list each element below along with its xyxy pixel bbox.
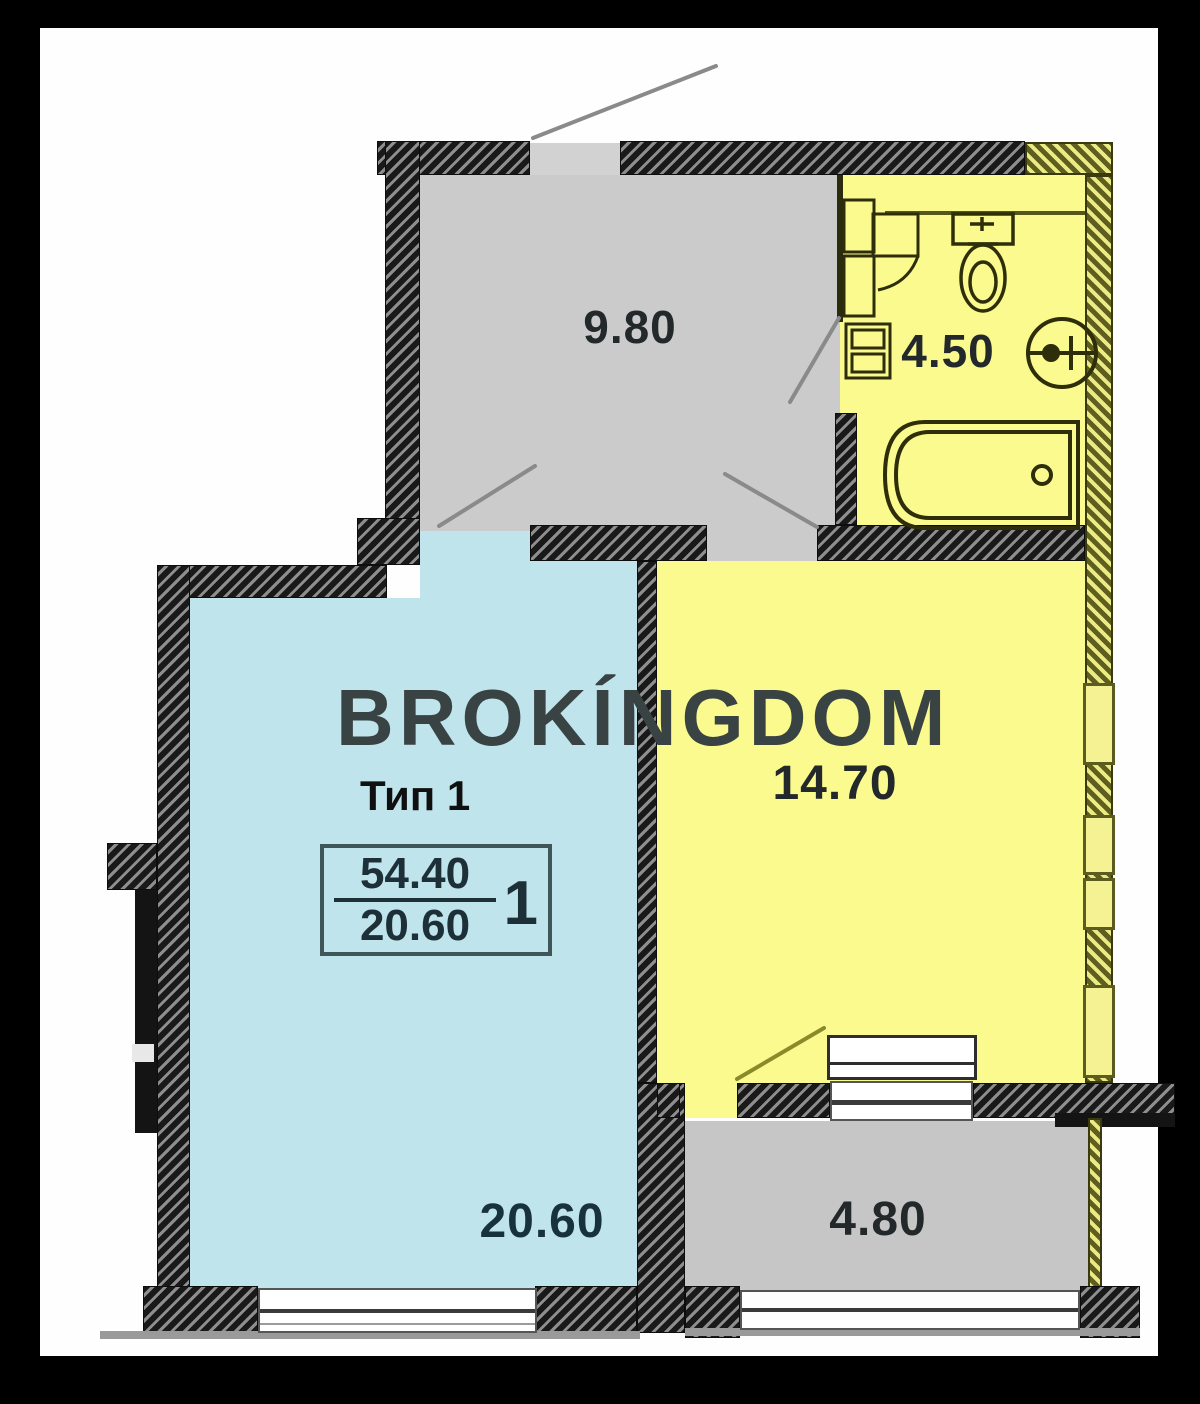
wall-glass-block xyxy=(1083,985,1115,1078)
wall-main-bottom-left xyxy=(143,1286,258,1333)
wall-balcony-divider xyxy=(637,1083,685,1333)
room-label-hall: 9.80 xyxy=(545,300,715,354)
window-sill-line xyxy=(260,1323,535,1325)
stamp-rooms-count: 1 xyxy=(504,868,538,939)
radiator-icon xyxy=(827,1035,977,1080)
wall-top-right-segment xyxy=(620,141,1025,175)
door-swing-entrance xyxy=(533,66,716,138)
wall-main-room-top xyxy=(157,565,387,598)
stamp-total-area: 54.40 xyxy=(332,850,498,898)
wall-bathroom-bottom xyxy=(817,525,1085,561)
bathroom-shelf-line xyxy=(885,211,1085,215)
room-hall-doorway xyxy=(707,525,817,561)
apartment-stamp: 54.40 20.60 1 xyxy=(320,844,552,956)
window-frame-line xyxy=(260,1309,535,1313)
apartment-type-label: Тип 1 xyxy=(360,772,520,820)
wall-main-bottom-right xyxy=(535,1286,637,1333)
wall-main-room-left xyxy=(157,565,190,1333)
wall-bathroom-partition xyxy=(837,175,843,322)
wall-living-bottom-left xyxy=(657,1083,680,1118)
plan-page: 9.80 4.50 14.70 20.60 4.80 BROKÍNGDOM Ти… xyxy=(40,28,1158,1356)
wall-balcony-right xyxy=(1088,1118,1102,1293)
stamp-living-area: 20.60 xyxy=(332,902,498,950)
wall-bathroom-door-stub xyxy=(835,413,857,525)
floor-plan-canvas: 9.80 4.50 14.70 20.60 4.80 BROKÍNGDOM Ти… xyxy=(0,0,1200,1404)
wall-glass-block xyxy=(1083,815,1115,875)
wall-left-pilaster xyxy=(107,843,157,890)
window-balcony xyxy=(740,1290,1080,1330)
wall-living-bottom-mid xyxy=(737,1083,830,1118)
wall-room-divider xyxy=(637,561,657,1083)
room-label-living: 14.70 xyxy=(750,756,920,811)
wall-right-exterior xyxy=(1085,175,1113,1083)
radiator-line xyxy=(830,1062,974,1065)
wall-glass-block xyxy=(1083,683,1115,765)
wall-left-strip xyxy=(135,890,157,1133)
wall-glass-block xyxy=(1083,878,1115,930)
watermark-logo: BROKÍNGDOM xyxy=(336,678,976,758)
wall-shadow xyxy=(1055,1113,1175,1127)
wall-hall-bottom xyxy=(530,525,707,561)
wall-top-corner-olive xyxy=(1025,142,1113,175)
room-label-bathroom: 4.50 xyxy=(863,324,1033,378)
stamp-fraction: 54.40 20.60 xyxy=(332,850,498,950)
wall-hall-left-foot xyxy=(357,518,420,565)
room-label-balcony: 4.80 xyxy=(793,1192,963,1247)
window-frame-line xyxy=(832,1100,971,1105)
window-frame-line xyxy=(742,1308,1078,1312)
window-living-room xyxy=(830,1081,973,1121)
wall-left-strip-notch xyxy=(132,1044,154,1062)
window-main-room xyxy=(258,1288,537,1333)
wall-hall-left xyxy=(385,141,420,545)
room-label-main: 20.60 xyxy=(457,1194,627,1249)
entrance-doorway xyxy=(530,143,620,175)
